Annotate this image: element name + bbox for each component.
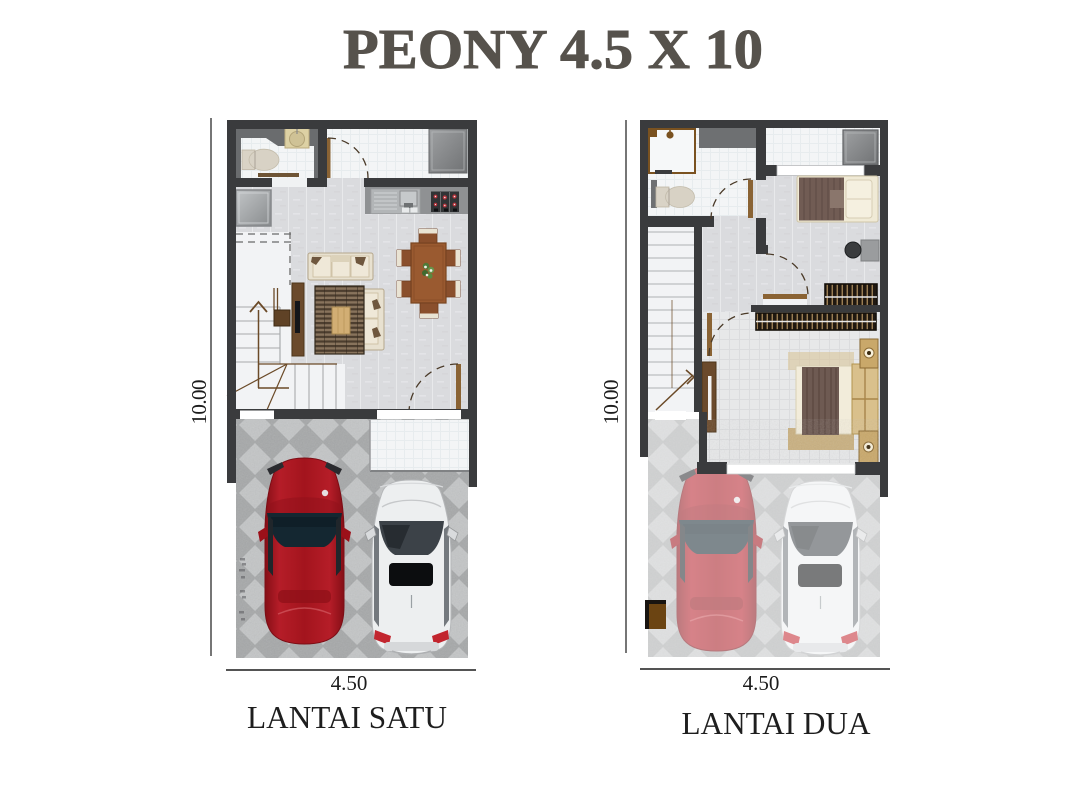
svg-text:4.50: 4.50 bbox=[743, 671, 780, 695]
svg-text:10.00: 10.00 bbox=[599, 380, 623, 425]
svg-text:LANTAI SATU: LANTAI SATU bbox=[247, 699, 447, 735]
svg-text:PEONY 4.5 X 10: PEONY 4.5 X 10 bbox=[343, 19, 763, 81]
svg-text:LANTAI DUA: LANTAI DUA bbox=[682, 705, 871, 741]
svg-text:4.50: 4.50 bbox=[331, 671, 368, 695]
svg-text:10.00: 10.00 bbox=[187, 380, 211, 425]
